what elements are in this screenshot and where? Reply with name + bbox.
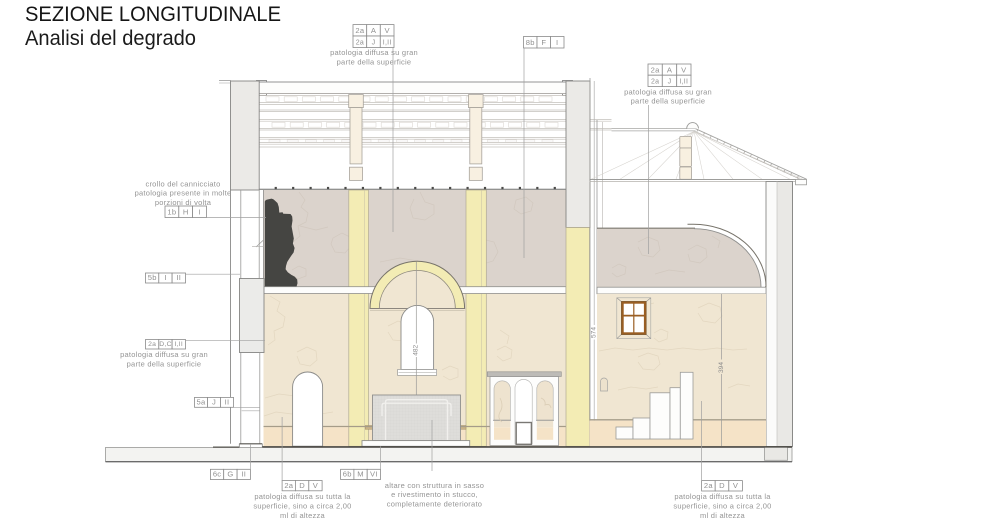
svg-text:1b: 1b	[167, 208, 176, 217]
svg-text:patologia diffusa su tutta la: patologia diffusa su tutta la	[254, 492, 351, 501]
svg-text:J: J	[668, 79, 672, 86]
svg-text:parte della superficie: parte della superficie	[127, 359, 202, 368]
svg-text:ml di altezza: ml di altezza	[280, 511, 326, 520]
svg-text:II: II	[225, 397, 230, 406]
svg-text:2a: 2a	[651, 79, 659, 86]
svg-text:2a: 2a	[284, 481, 293, 490]
svg-text:2a: 2a	[355, 26, 364, 35]
svg-text:J: J	[372, 40, 376, 47]
svg-text:G: G	[227, 470, 233, 479]
svg-text:M: M	[357, 470, 364, 479]
svg-text:D,C: D,C	[159, 341, 171, 348]
svg-text:8b: 8b	[526, 38, 535, 47]
svg-text:2a: 2a	[651, 65, 660, 74]
svg-text:altare con struttura in sasso: altare con struttura in sasso	[385, 481, 484, 490]
svg-text:574: 574	[591, 327, 598, 338]
svg-text:ml di altezza: ml di altezza	[700, 511, 746, 520]
svg-text:D: D	[719, 481, 725, 490]
svg-text:superficie, sino a circa 2,00: superficie, sino a circa 2,00	[673, 502, 771, 511]
svg-text:A: A	[667, 65, 673, 74]
svg-text:5a: 5a	[197, 397, 206, 406]
svg-text:I: I	[164, 273, 166, 282]
svg-text:patologia presente in molte: patologia presente in molte	[135, 189, 232, 198]
svg-text:V: V	[385, 26, 391, 35]
svg-text:porzioni di volta: porzioni di volta	[155, 198, 212, 207]
svg-text:VI: VI	[370, 470, 378, 479]
svg-text:e rivestimento in stucco,: e rivestimento in stucco,	[391, 490, 478, 499]
svg-text:482: 482	[413, 344, 420, 355]
svg-text:II: II	[241, 470, 246, 479]
svg-text:D: D	[299, 481, 305, 490]
svg-text:I,II: I,II	[679, 79, 688, 86]
svg-text:patologia diffusa su gran: patologia diffusa su gran	[330, 48, 418, 57]
svg-text:H: H	[183, 208, 189, 217]
svg-text:I: I	[198, 208, 200, 217]
svg-text:2a: 2a	[356, 40, 364, 47]
svg-text:2a: 2a	[704, 481, 713, 490]
svg-text:394: 394	[718, 362, 725, 373]
svg-text:I,II: I,II	[383, 40, 392, 47]
svg-text:II: II	[176, 273, 181, 282]
svg-text:F: F	[541, 38, 546, 47]
svg-text:patologia diffusa su gran: patologia diffusa su gran	[120, 350, 208, 359]
svg-text:I,II: I,II	[175, 341, 184, 348]
svg-text:SEZIONE LONGITUDINALE: SEZIONE LONGITUDINALE	[25, 1, 281, 26]
svg-text:J: J	[212, 397, 216, 406]
svg-text:patologia diffusa su tutta la: patologia diffusa su tutta la	[674, 492, 771, 501]
svg-text:crollo del cannicciato: crollo del cannicciato	[145, 179, 220, 188]
svg-text:A: A	[371, 26, 377, 35]
svg-text:Analisi del degrado: Analisi del degrado	[25, 25, 196, 50]
svg-text:parte della superficie: parte della superficie	[631, 97, 706, 106]
svg-text:parte della superficie: parte della superficie	[337, 58, 412, 67]
svg-text:2a: 2a	[148, 341, 156, 348]
svg-text:6c: 6c	[213, 470, 222, 479]
svg-text:6b: 6b	[343, 470, 352, 479]
svg-text:5b: 5b	[148, 273, 157, 282]
svg-text:V: V	[681, 65, 687, 74]
svg-text:superficie, sino a circa 2,00: superficie, sino a circa 2,00	[253, 502, 351, 511]
svg-text:V: V	[733, 481, 739, 490]
svg-text:I: I	[556, 38, 558, 47]
svg-text:completamente deteriorato: completamente deteriorato	[387, 499, 482, 508]
svg-text:V: V	[313, 481, 319, 490]
svg-text:patologia diffusa su gran: patologia diffusa su gran	[624, 87, 712, 96]
